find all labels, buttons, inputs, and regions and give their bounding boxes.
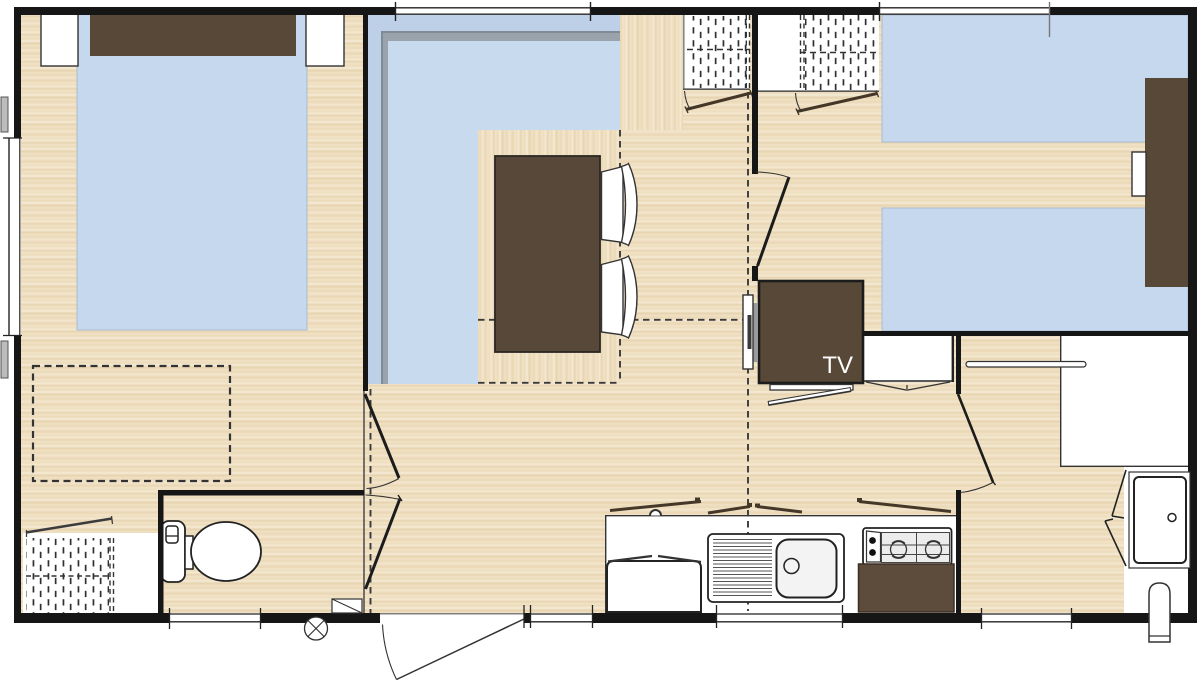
svg-text:TV: TV [822, 352, 853, 379]
